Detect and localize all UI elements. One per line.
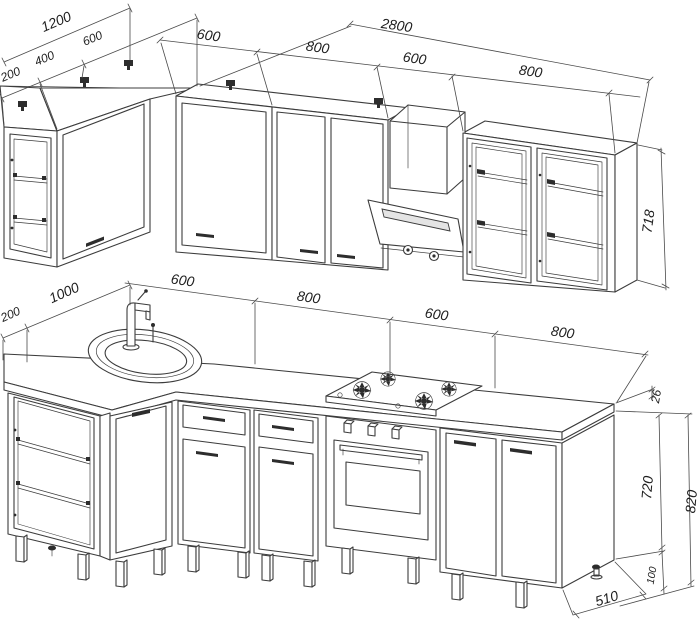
base-drawer-cabinet-1 xyxy=(178,401,250,553)
base-cabinet-double-door xyxy=(440,415,614,588)
dim-label-510: 510 xyxy=(593,587,620,609)
drawing-canvas: 1200 200 400 600 2800 600 800 600 800 71… xyxy=(0,0,700,635)
base-drawer-cabinet-2 xyxy=(254,410,318,561)
wall-cabinet-glass-narrow xyxy=(0,86,57,267)
dim-label-820: 820 xyxy=(682,489,700,514)
dim-label-400: 400 xyxy=(32,48,56,69)
dim-label-800: 800 xyxy=(296,288,322,307)
wall-cabinet-double-door xyxy=(272,107,388,270)
dim-label-1000: 1000 xyxy=(46,279,81,306)
dim-label-2800: 2800 xyxy=(379,15,413,35)
corner-base-cabinet xyxy=(110,402,172,560)
dim-label-200: 200 xyxy=(0,304,23,325)
dim-label-200: 200 xyxy=(0,64,23,85)
dim-label-800: 800 xyxy=(518,62,544,81)
kitchen-drawing: 1200 200 400 600 2800 600 800 600 800 71… xyxy=(0,0,700,635)
corner-base-open-shelf xyxy=(8,393,110,560)
dim-label-718: 718 xyxy=(639,208,658,234)
wall-cabinet-glass-double xyxy=(463,133,637,292)
dim-label-100: 100 xyxy=(645,566,660,585)
dim-label-800: 800 xyxy=(550,323,576,342)
dim-label-720: 720 xyxy=(638,475,656,500)
dim-label-600: 600 xyxy=(196,26,222,45)
hood-duct-box xyxy=(390,105,465,194)
dim-label-600: 600 xyxy=(170,271,196,290)
dim-label-600: 600 xyxy=(424,305,450,324)
dim-label-600: 600 xyxy=(402,49,428,68)
dim-label-800: 800 xyxy=(305,38,331,57)
dim-label-26: 26 xyxy=(648,388,664,405)
corner-wall-cabinet xyxy=(40,88,197,267)
corner-wall-cabinet-front-door xyxy=(176,96,272,260)
dim-label-1200: 1200 xyxy=(39,8,74,35)
dimension-wall-height: 718 xyxy=(637,145,669,290)
dim-label-600: 600 xyxy=(80,28,104,49)
